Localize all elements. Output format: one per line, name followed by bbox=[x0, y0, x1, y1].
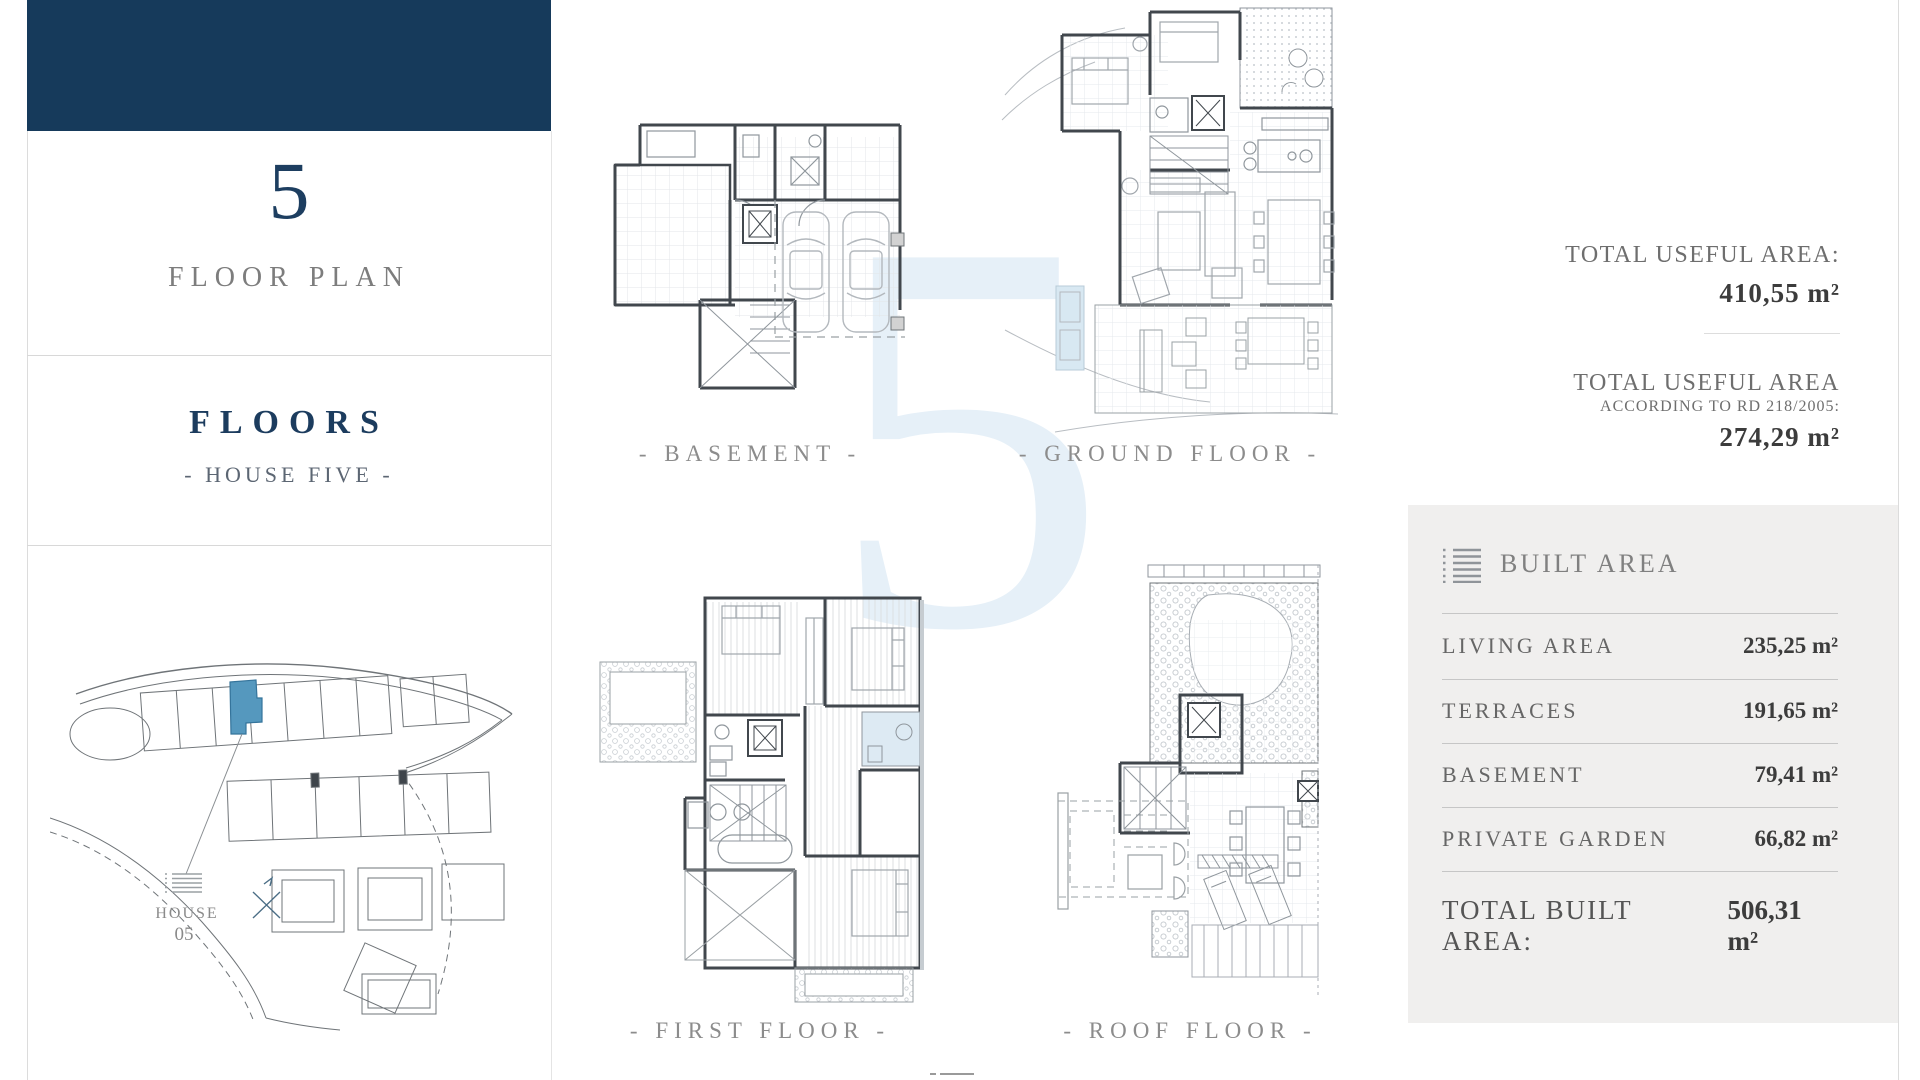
row-label: PRIVATE GARDEN bbox=[1442, 826, 1669, 852]
total-useful-area-rd-label: TOTAL USEFUL AREA bbox=[1573, 370, 1840, 397]
total-useful-area-value: 410,55 m² bbox=[1719, 278, 1840, 309]
row-label: LIVING AREA bbox=[1442, 633, 1615, 659]
siteplan-hatch-icon bbox=[165, 874, 202, 892]
compass-icon bbox=[253, 878, 280, 918]
page-right-border bbox=[1898, 0, 1899, 1080]
ground-floor-label: - GROUND FLOOR - bbox=[1000, 441, 1340, 467]
first-floor-plan bbox=[590, 540, 930, 1005]
total-useful-area-label: TOTAL USEFUL AREA: bbox=[1565, 242, 1840, 269]
built-area-row-garden: PRIVATE GARDEN 66,82 m² bbox=[1408, 807, 1898, 871]
sidebar-divider bbox=[27, 545, 551, 546]
built-area-row-terraces: TERRACES 191,65 m² bbox=[1408, 679, 1898, 743]
total-label: TOTAL BUILT AREA: bbox=[1442, 895, 1728, 957]
built-area-row-basement: BASEMENT 79,41 m² bbox=[1408, 743, 1898, 807]
basement-floor-plan bbox=[585, 105, 915, 430]
sidebar-right-border bbox=[551, 131, 552, 1080]
siteplan-house-label: HOUSE bbox=[155, 905, 218, 922]
house-number-heading: 5 bbox=[27, 150, 551, 232]
stats-divider bbox=[1704, 333, 1840, 334]
row-label: TERRACES bbox=[1442, 698, 1578, 724]
siteplan-house-number: 05 bbox=[175, 924, 194, 945]
row-value: 191,65 m² bbox=[1743, 698, 1838, 724]
brand-color-block bbox=[27, 0, 551, 131]
row-label: BASEMENT bbox=[1442, 762, 1585, 788]
total-useful-area-rd-value: 274,29 m² bbox=[1719, 422, 1840, 453]
ground-floor-plan bbox=[1000, 0, 1340, 435]
built-area-row-living: LIVING AREA 235,25 m² bbox=[1408, 613, 1898, 679]
built-area-total-row: TOTAL BUILT AREA: 506,31 m² bbox=[1408, 871, 1898, 981]
roof-floor-label: - ROOF FLOOR - bbox=[1040, 1018, 1340, 1044]
floors-title: FLOORS bbox=[27, 404, 551, 442]
total-useful-area-rd-sublabel: ACCORDING TO RD 218/2005: bbox=[1600, 398, 1840, 416]
brochure-page: 5 5 FLOOR PLAN FLOORS - HOUSE FIVE - bbox=[0, 0, 1920, 1080]
built-area-panel: BUILT AREA LIVING AREA 235,25 m² TERRACE… bbox=[1408, 505, 1898, 1023]
list-icon bbox=[1442, 547, 1482, 583]
scale-mark bbox=[930, 1073, 976, 1075]
roof-floor-plan bbox=[1040, 525, 1340, 1005]
built-area-title: BUILT AREA bbox=[1500, 549, 1680, 579]
site-plan-map: HOUSE 05 bbox=[50, 622, 550, 1032]
basement-label: - BASEMENT - bbox=[585, 441, 915, 467]
first-floor-label: - FIRST FLOOR - bbox=[590, 1018, 930, 1044]
floor-plan-subtitle: FLOOR PLAN bbox=[27, 262, 551, 294]
row-value: 66,82 m² bbox=[1754, 826, 1838, 852]
row-value: 79,41 m² bbox=[1754, 762, 1838, 788]
total-value: 506,31 m² bbox=[1728, 895, 1838, 957]
house-five-subtitle: - HOUSE FIVE - bbox=[27, 462, 551, 488]
siteplan-highlighted-house bbox=[230, 680, 262, 734]
sidebar-divider bbox=[27, 355, 551, 356]
row-value: 235,25 m² bbox=[1743, 633, 1838, 659]
